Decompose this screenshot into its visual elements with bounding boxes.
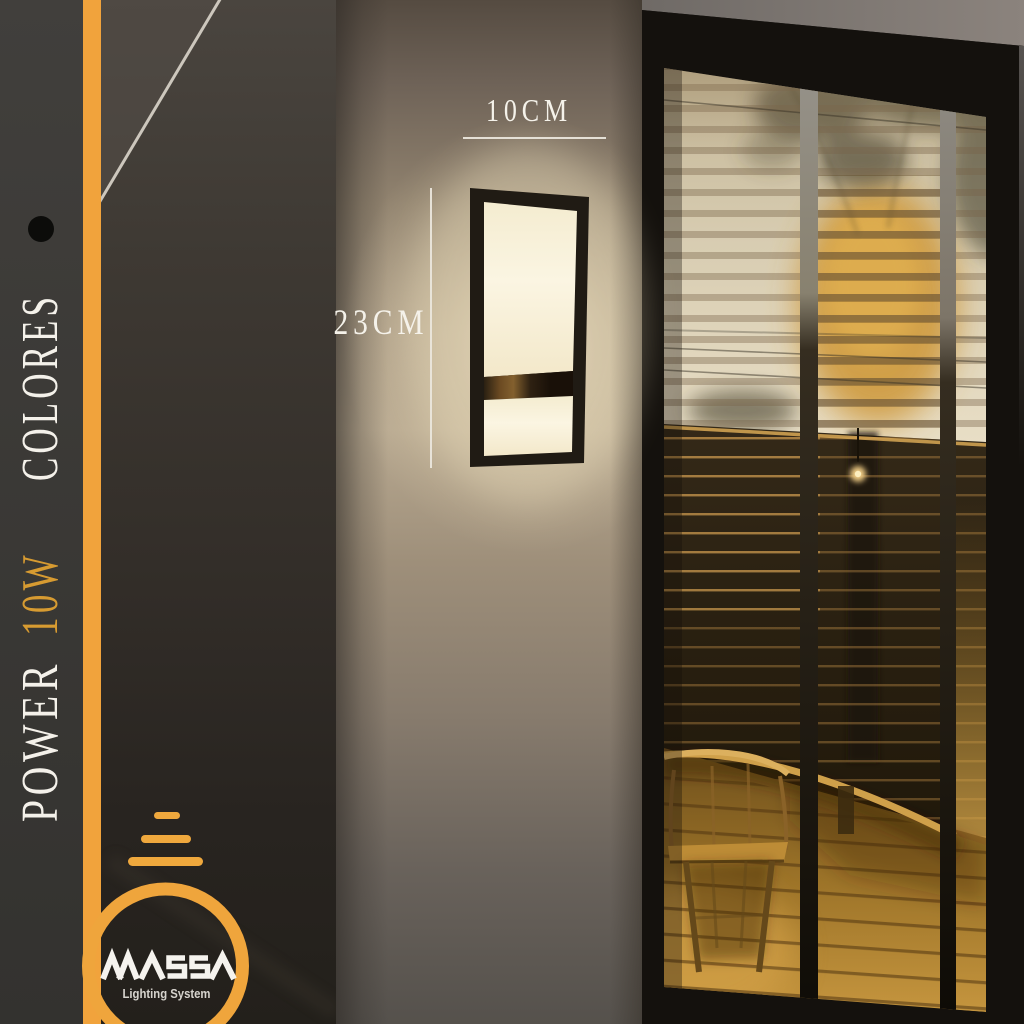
svg-text:23CM: 23CM [334, 302, 429, 342]
svg-text:10CM: 10CM [486, 92, 572, 128]
svg-text:Lighting System: Lighting System [123, 987, 211, 1001]
svg-text:10W: 10W [12, 551, 69, 636]
svg-text:COLORES: COLORES [12, 293, 69, 481]
svg-text:POWER: POWER [12, 660, 69, 822]
